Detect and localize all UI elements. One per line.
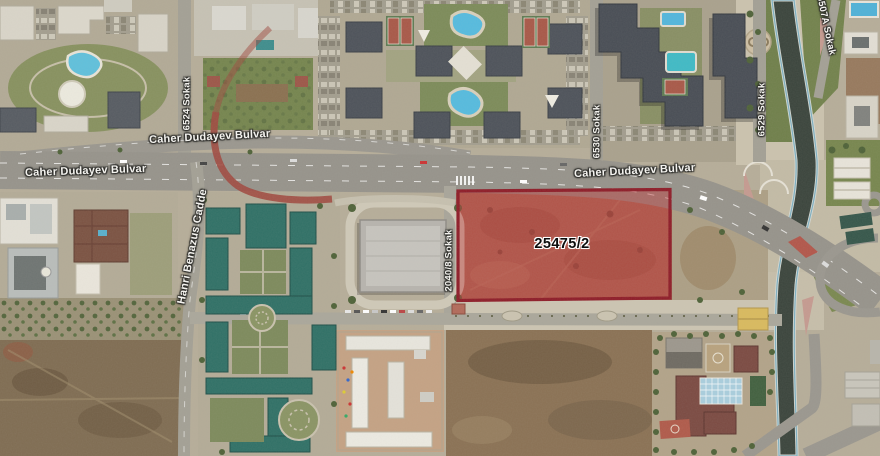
- satellite-imagery[interactable]: [0, 0, 880, 456]
- satellite-map[interactable]: Caher Dudayev Bulvar Caher Dudayev Bulva…: [0, 0, 880, 456]
- imagery-texture: [0, 0, 880, 456]
